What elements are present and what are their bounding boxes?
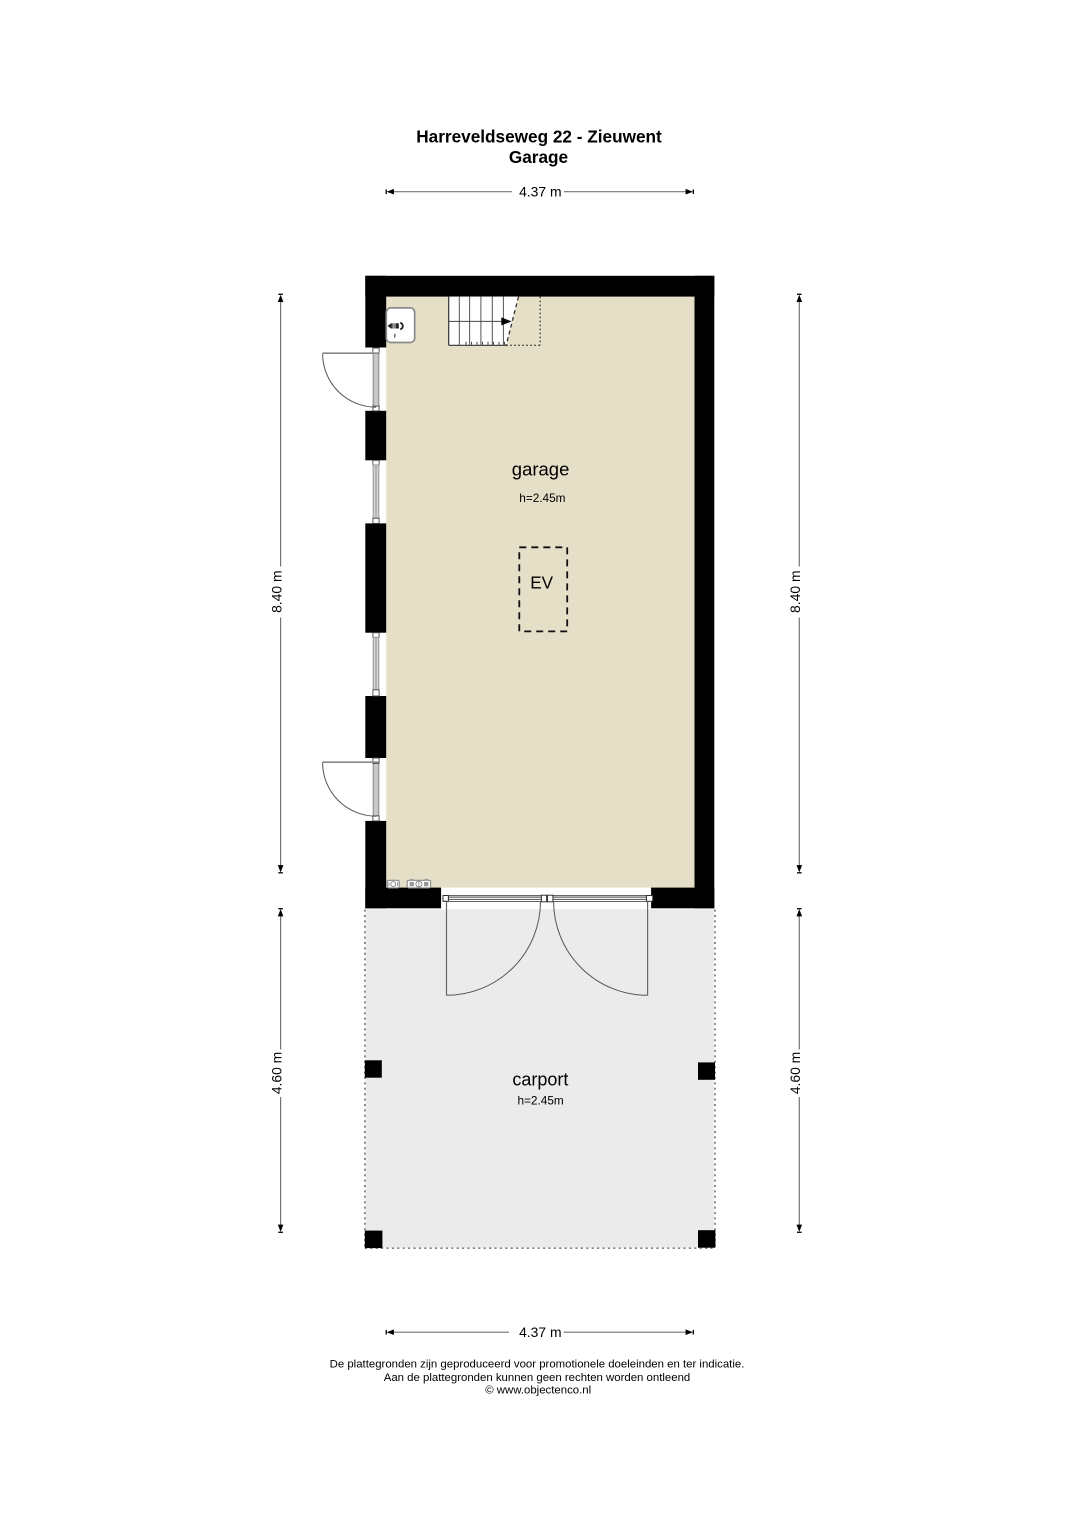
svg-text:De plattegronden zijn geproduc: De plattegronden zijn geproduceerd voor …	[330, 1359, 745, 1371]
svg-text:4.60 m: 4.60 m	[269, 1052, 285, 1094]
svg-text:garage: garage	[512, 458, 570, 479]
svg-text:h=2.45m: h=2.45m	[519, 491, 565, 505]
svg-text:4.60 m: 4.60 m	[787, 1052, 803, 1094]
svg-text:carport: carport	[512, 1070, 568, 1090]
svg-text:Garage: Garage	[509, 147, 568, 167]
svg-text:Harreveldseweg 22 - Zieuwent: Harreveldseweg 22 - Zieuwent	[416, 126, 662, 146]
svg-text:h=2.45m: h=2.45m	[517, 1093, 563, 1107]
svg-text:8.40 m: 8.40 m	[787, 570, 803, 612]
svg-text:© www.objectenco.nl: © www.objectenco.nl	[485, 1385, 591, 1397]
svg-text:Aan de plattegronden kunnen ge: Aan de plattegronden kunnen geen rechten…	[384, 1372, 691, 1384]
svg-text:4.37 m: 4.37 m	[519, 184, 561, 200]
svg-text:4.37 m: 4.37 m	[519, 1324, 561, 1340]
svg-text:EV: EV	[530, 573, 553, 592]
svg-text:8.40 m: 8.40 m	[269, 570, 285, 612]
